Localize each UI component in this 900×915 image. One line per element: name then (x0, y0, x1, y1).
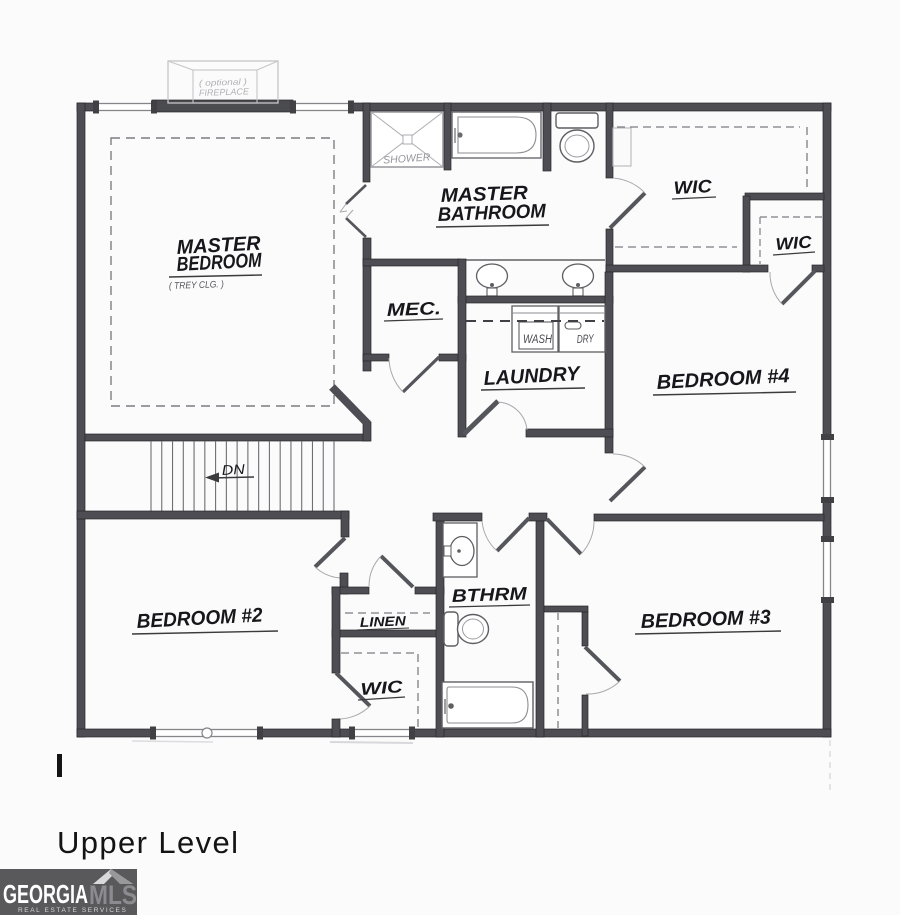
svg-text:GEORGIA: GEORGIA (3, 879, 88, 909)
svg-text:WIC: WIC (775, 232, 813, 254)
svg-text:REAL ESTATE SERVICES: REAL ESTATE SERVICES (18, 907, 127, 914)
svg-text:( TREY CLG. ): ( TREY CLG. ) (169, 279, 224, 292)
svg-text:Upper Level: Upper Level (57, 825, 238, 860)
svg-text:WIC: WIC (673, 176, 713, 198)
svg-text:MLS: MLS (89, 880, 137, 910)
svg-text:LINEN: LINEN (360, 613, 407, 630)
svg-text:BTHRM: BTHRM (451, 583, 528, 606)
svg-text:FIREPLACE: FIREPLACE (199, 86, 250, 98)
svg-text:WASH: WASH (523, 334, 553, 346)
svg-text:WIC: WIC (360, 677, 404, 699)
svg-text:DRY: DRY (577, 333, 596, 346)
svg-text:BATHROOM: BATHROOM (437, 200, 546, 226)
svg-text:BEDROOM: BEDROOM (176, 250, 263, 276)
svg-text:MEC.: MEC. (386, 298, 441, 320)
svg-text:DN: DN (221, 461, 246, 478)
svg-text:BEDROOM #3: BEDROOM #3 (640, 606, 771, 633)
